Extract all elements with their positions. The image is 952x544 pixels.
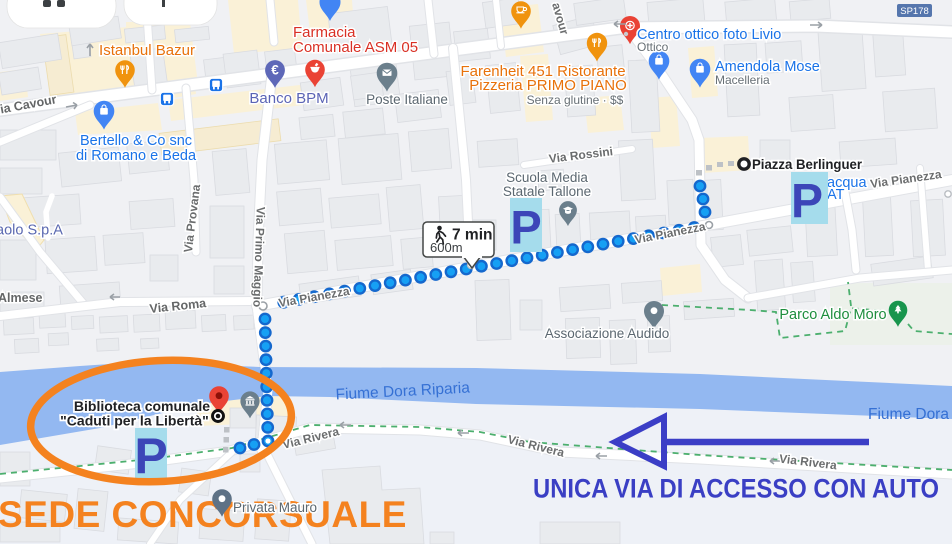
svg-text:UNICA VIA DI ACCESSO CON AUTO: UNICA VIA DI ACCESSO CON AUTO <box>533 474 939 504</box>
svg-text:SEDE CONCORSUALE: SEDE CONCORSUALE <box>0 494 407 535</box>
svg-text:Scuola Media: Scuola Media <box>506 170 588 185</box>
svg-text:Almese: Almese <box>0 291 43 305</box>
svg-text:Istanbul Bazur: Istanbul Bazur <box>99 42 195 59</box>
svg-text:P: P <box>791 175 823 228</box>
svg-text:P: P <box>134 428 167 484</box>
svg-text:Parco Aldo Moro: Parco Aldo Moro <box>779 307 886 323</box>
svg-text:Pizzeria PRIMO PIANO: Pizzeria PRIMO PIANO <box>469 77 627 94</box>
svg-text:Ottico: Ottico <box>637 40 669 54</box>
svg-text:AT: AT <box>827 187 845 203</box>
svg-text:€: € <box>271 63 279 78</box>
svg-text:Statale Tallone: Statale Tallone <box>503 184 591 199</box>
svg-text:SP178: SP178 <box>900 6 929 17</box>
svg-text:"Caduti per la Libertà": "Caduti per la Libertà" <box>60 413 209 429</box>
svg-text:Fiume Dora: Fiume Dora <box>868 406 949 423</box>
svg-text:Piazza Berlinguer: Piazza Berlinguer <box>752 156 863 172</box>
svg-text:Associazione Audido: Associazione Audido <box>545 326 670 341</box>
svg-text:Comunale ASM 05: Comunale ASM 05 <box>293 39 418 56</box>
svg-text:Poste Italiane: Poste Italiane <box>366 92 448 107</box>
svg-text:Senza glutine · $$: Senza glutine · $$ <box>527 93 624 107</box>
svg-text:Bertello & Co snc: Bertello & Co snc <box>80 133 192 149</box>
svg-text:600m: 600m <box>430 240 463 255</box>
svg-text:P: P <box>510 201 541 254</box>
svg-text:Macelleria: Macelleria <box>715 73 770 87</box>
svg-text:di Romano e Beda: di Romano e Beda <box>76 148 197 164</box>
svg-text:Privata Mauro: Privata Mauro <box>233 500 317 515</box>
svg-text:aolo S.p.A: aolo S.p.A <box>0 223 63 239</box>
svg-text:Banco BPM: Banco BPM <box>249 90 328 107</box>
